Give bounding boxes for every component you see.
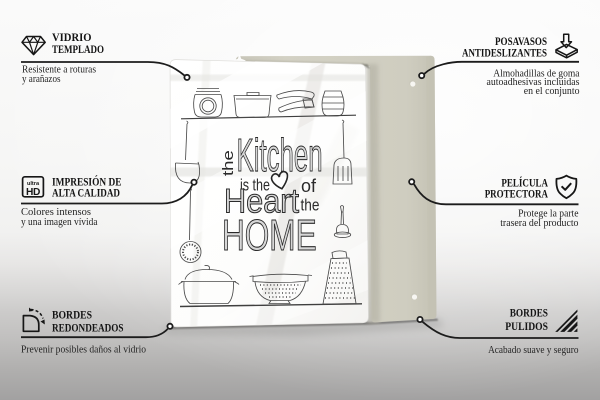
svg-text:HOME: HOME [222,212,317,260]
svg-text:y arañazos: y arañazos [22,74,61,85]
svg-text:en el conjunto: en el conjunto [524,86,580,97]
svg-text:BORDES: BORDES [510,308,548,320]
svg-text:PULIDOS: PULIDOS [505,321,548,333]
svg-text:PROTECTORA: PROTECTORA [485,188,549,200]
svg-text:of: of [301,176,317,196]
svg-text:Prevenir posibles daños al vid: Prevenir posibles daños al vidrio [21,344,146,355]
svg-text:trasera del producto: trasera del producto [500,218,578,229]
svg-text:the: the [220,150,237,176]
svg-text:HD: HD [26,187,40,198]
svg-text:BORDES: BORDES [52,310,92,322]
svg-text:REDONDEADOS: REDONDEADOS [52,322,124,334]
svg-text:ANTIDESLIZANTES: ANTIDESLIZANTES [462,48,547,60]
svg-text:IMPRESIÓN DE: IMPRESIÓN DE [52,175,122,189]
svg-text:Acabado suave y seguro: Acabado suave y seguro [488,345,578,356]
svg-text:TEMPLADO: TEMPLADO [52,44,104,56]
svg-text:ALTA CALIDAD: ALTA CALIDAD [52,188,120,200]
svg-text:Kitchen: Kitchen [237,129,323,181]
svg-text:VIDRIO: VIDRIO [52,32,92,44]
svg-text:y una imagen vívida: y una imagen vívida [21,217,98,228]
svg-text:POSAVASOS: POSAVASOS [495,36,547,48]
